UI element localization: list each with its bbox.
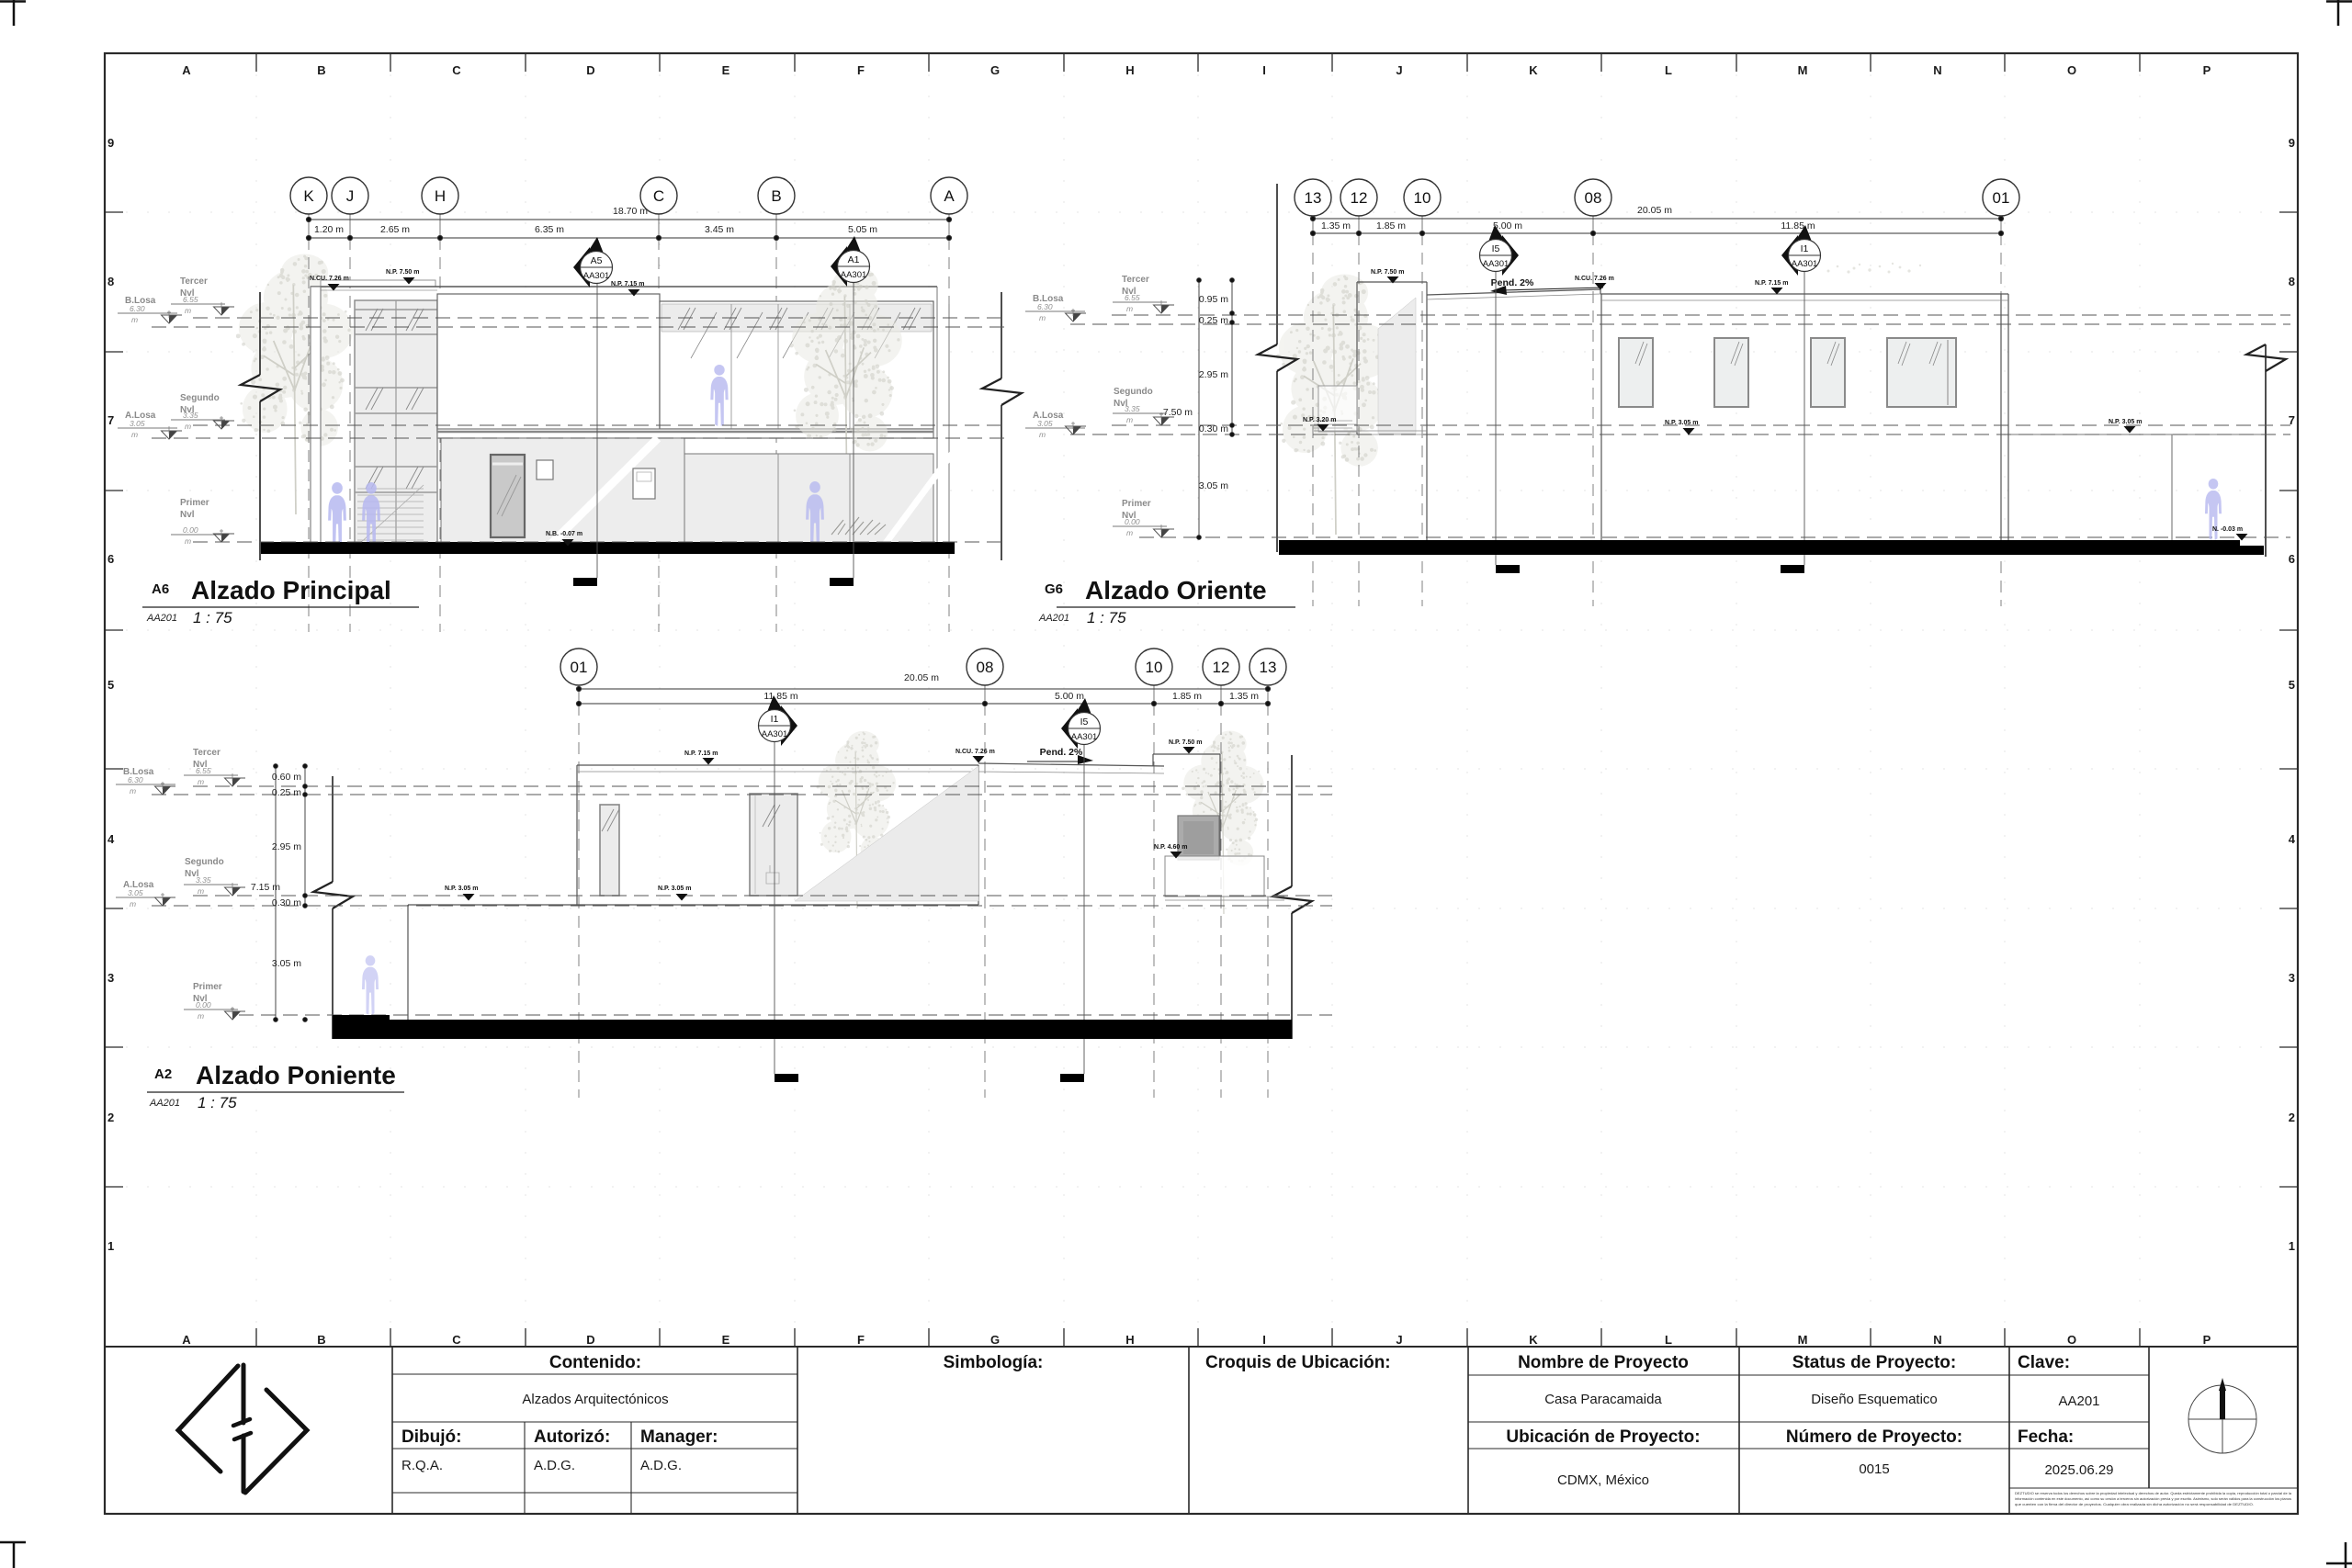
svg-text:N.B. -0.07 m: N.B. -0.07 m	[546, 531, 582, 537]
svg-text:A1: A1	[848, 254, 860, 265]
svg-text:8: 8	[107, 275, 114, 288]
svg-text:Simbología:: Simbología:	[944, 1353, 1044, 1372]
svg-text:Diseño Esquematico: Diseño Esquematico	[1811, 1392, 1938, 1407]
svg-text:N.CU. 7.26 m: N.CU. 7.26 m	[310, 276, 349, 282]
svg-text:Pend. 2%: Pend. 2%	[1491, 277, 1534, 288]
svg-text:N.P. 3.05 m: N.P. 3.05 m	[658, 886, 691, 892]
svg-text:11.85 m: 11.85 m	[763, 691, 797, 702]
svg-text:3: 3	[2289, 971, 2295, 985]
svg-text:N.CU. 7.26 m: N.CU. 7.26 m	[955, 749, 995, 755]
svg-text:A: A	[182, 63, 191, 77]
svg-text:5: 5	[107, 678, 114, 692]
svg-text:0015: 0015	[1859, 1461, 1889, 1477]
svg-text:5: 5	[2289, 678, 2295, 692]
svg-text:N.P. 7.50 m: N.P. 7.50 m	[1371, 269, 1404, 276]
svg-text:Status de Proyecto:: Status de Proyecto:	[1792, 1353, 1956, 1372]
svg-text:Primer: Primer	[1122, 499, 1151, 509]
svg-text:2.65 m: 2.65 m	[380, 224, 410, 235]
svg-text:Número de Proyecto:: Número de Proyecto:	[1786, 1427, 1962, 1447]
svg-text:Primer: Primer	[180, 498, 209, 508]
svg-text:AA201: AA201	[1038, 613, 1069, 624]
svg-text:m: m	[131, 315, 138, 324]
svg-text:1 : 75: 1 : 75	[198, 1094, 237, 1111]
svg-text:N.P. 7.50 m: N.P. 7.50 m	[386, 269, 419, 276]
svg-text:9: 9	[107, 136, 114, 150]
svg-text:6: 6	[107, 552, 114, 566]
svg-text:A2: A2	[154, 1066, 172, 1082]
svg-text:F: F	[857, 1333, 865, 1347]
svg-text:3.05: 3.05	[128, 888, 143, 897]
svg-text:3.35: 3.35	[183, 411, 198, 420]
svg-text:0.60 m: 0.60 m	[272, 772, 301, 783]
svg-text:Alzados Arquitectónicos: Alzados Arquitectónicos	[522, 1392, 668, 1407]
svg-text:D: D	[586, 63, 594, 77]
svg-text:E: E	[722, 63, 730, 77]
svg-text:m: m	[198, 777, 204, 786]
svg-text:I5: I5	[1492, 243, 1500, 254]
svg-text:K: K	[1529, 63, 1538, 77]
svg-text:G: G	[990, 63, 1000, 77]
svg-text:Alzado Poniente: Alzado Poniente	[196, 1061, 396, 1089]
svg-text:4: 4	[2289, 832, 2296, 846]
svg-text:3.05: 3.05	[1037, 419, 1053, 428]
svg-text:N: N	[1933, 1333, 1941, 1347]
svg-text:2025.06.29: 2025.06.29	[2044, 1462, 2113, 1478]
svg-text:2.95 m: 2.95 m	[1199, 369, 1228, 380]
svg-text:01: 01	[571, 659, 588, 676]
svg-text:1.20 m: 1.20 m	[314, 224, 344, 235]
svg-text:R.Q.A.: R.Q.A.	[401, 1458, 443, 1473]
svg-text:m: m	[1126, 415, 1133, 424]
svg-text:N.P. 3.05 m: N.P. 3.05 m	[1665, 420, 1698, 426]
svg-text:I5: I5	[1080, 716, 1089, 728]
svg-text:20.05 m: 20.05 m	[904, 672, 939, 683]
svg-text:A: A	[182, 1333, 191, 1347]
svg-text:A: A	[944, 187, 955, 205]
svg-text:Tercer: Tercer	[1122, 275, 1149, 285]
svg-text:A6: A6	[152, 581, 169, 597]
svg-text:Alzado Principal: Alzado Principal	[191, 576, 391, 604]
svg-text:3.45 m: 3.45 m	[705, 224, 734, 235]
svg-text:J: J	[1396, 1333, 1402, 1347]
svg-text:K: K	[1529, 1333, 1538, 1347]
svg-text:Tercer: Tercer	[193, 748, 220, 758]
svg-text:AA301: AA301	[583, 271, 610, 281]
svg-text:M: M	[1798, 63, 1808, 77]
svg-text:Fecha:: Fecha:	[2018, 1427, 2074, 1447]
svg-text:6.30: 6.30	[128, 775, 143, 784]
svg-text:m: m	[185, 306, 191, 315]
svg-text:AA301: AA301	[1483, 259, 1510, 269]
svg-text:6.30: 6.30	[130, 304, 145, 313]
svg-text:Clave:: Clave:	[2018, 1353, 2070, 1372]
svg-text:1 : 75: 1 : 75	[193, 609, 232, 626]
svg-text:18.70 m: 18.70 m	[613, 206, 648, 217]
svg-text:0.25 m: 0.25 m	[272, 787, 301, 798]
svg-text:m: m	[1039, 313, 1046, 322]
svg-text:G: G	[990, 1333, 1000, 1347]
svg-text:6.30: 6.30	[1037, 302, 1053, 311]
svg-text:20.05 m: 20.05 m	[1637, 205, 1672, 216]
svg-text:Tercer: Tercer	[180, 276, 208, 287]
svg-text:1.35 m: 1.35 m	[1229, 691, 1259, 702]
svg-text:G6: G6	[1045, 581, 1063, 597]
svg-text:2.95 m: 2.95 m	[272, 841, 301, 852]
svg-text:3.35: 3.35	[196, 875, 211, 885]
svg-text:B: B	[771, 187, 781, 205]
svg-text:K: K	[303, 187, 314, 205]
svg-text:AA201: AA201	[149, 1098, 180, 1109]
svg-text:08: 08	[1585, 189, 1602, 207]
svg-text:10: 10	[1146, 659, 1163, 676]
svg-text:CDMX, México: CDMX, México	[1557, 1472, 1649, 1488]
svg-text:6.55: 6.55	[183, 295, 198, 304]
svg-text:1: 1	[2289, 1239, 2295, 1253]
svg-text:6.35 m: 6.35 m	[535, 224, 564, 235]
svg-text:Nvl: Nvl	[180, 510, 195, 520]
svg-text:DEZTUDIO se reserva todos los: DEZTUDIO se reserva todos los derechos s…	[2015, 1492, 2292, 1495]
svg-text:0.00: 0.00	[1125, 517, 1140, 526]
svg-text:m: m	[130, 786, 136, 795]
svg-text:H: H	[1125, 1333, 1134, 1347]
svg-text:7: 7	[107, 413, 114, 427]
svg-text:N.P. 7.50 m: N.P. 7.50 m	[1169, 739, 1202, 746]
svg-text:AA301: AA301	[1792, 259, 1818, 269]
svg-text:m: m	[131, 430, 138, 439]
svg-text:9: 9	[2289, 136, 2295, 150]
svg-text:2: 2	[107, 1111, 114, 1124]
svg-text:0.30 m: 0.30 m	[272, 897, 301, 908]
svg-text:6.55: 6.55	[1125, 293, 1140, 302]
svg-text:11.85 m: 11.85 m	[1781, 220, 1815, 231]
svg-text:0.25 m: 0.25 m	[1199, 315, 1228, 326]
svg-text:m: m	[1126, 304, 1133, 313]
svg-text:J: J	[346, 187, 355, 205]
svg-text:M: M	[1798, 1333, 1808, 1347]
svg-text:Manager:: Manager:	[640, 1427, 718, 1447]
svg-text:m: m	[185, 536, 191, 546]
svg-text:0.30 m: 0.30 m	[1199, 423, 1228, 434]
svg-text:0.00: 0.00	[196, 1000, 211, 1010]
svg-text:Contenido:: Contenido:	[549, 1353, 641, 1372]
svg-text:N.P. 7.15 m: N.P. 7.15 m	[611, 281, 644, 288]
svg-text:N.P. 3.05 m: N.P. 3.05 m	[445, 886, 478, 892]
svg-text:m: m	[198, 1011, 204, 1021]
svg-text:Segundo: Segundo	[180, 393, 220, 403]
svg-text:A.D.G.: A.D.G.	[640, 1458, 682, 1473]
svg-text:3.05 m: 3.05 m	[1199, 480, 1228, 491]
svg-text:I: I	[1262, 1333, 1266, 1347]
svg-text:I: I	[1262, 63, 1266, 77]
svg-text:3: 3	[107, 971, 114, 985]
svg-text:N. -0.03 m: N. -0.03 m	[2212, 526, 2243, 533]
svg-text:N.P. 7.15 m: N.P. 7.15 m	[684, 750, 718, 757]
svg-text:Casa Paracamaida: Casa Paracamaida	[1544, 1392, 1662, 1407]
svg-text:1 : 75: 1 : 75	[1087, 609, 1126, 626]
svg-text:10: 10	[1414, 189, 1431, 207]
svg-text:13: 13	[1305, 189, 1322, 207]
svg-text:8: 8	[2289, 275, 2295, 288]
svg-text:Alzado Oriente: Alzado Oriente	[1085, 576, 1267, 604]
svg-text:1.85 m: 1.85 m	[1376, 220, 1406, 231]
svg-text:5.05 m: 5.05 m	[848, 224, 877, 235]
svg-text:AA301: AA301	[841, 270, 867, 280]
svg-text:AA201: AA201	[2058, 1393, 2099, 1409]
svg-text:Primer: Primer	[193, 982, 222, 992]
svg-text:C: C	[653, 187, 664, 205]
svg-text:2: 2	[2289, 1111, 2295, 1124]
svg-text:AA301: AA301	[762, 729, 788, 739]
svg-text:Segundo: Segundo	[185, 857, 224, 867]
svg-text:N: N	[1933, 63, 1941, 77]
svg-text:AA301: AA301	[1071, 732, 1098, 742]
svg-text:Autorizó:: Autorizó:	[534, 1427, 610, 1447]
svg-text:A5: A5	[591, 255, 603, 266]
svg-text:N.P. 3.05 m: N.P. 3.05 m	[2109, 419, 2142, 425]
svg-text:Croquis de Ubicación:: Croquis de Ubicación:	[1205, 1353, 1391, 1372]
svg-text:O: O	[2067, 1333, 2076, 1347]
svg-text:12: 12	[1213, 659, 1230, 676]
svg-text:C: C	[452, 1333, 461, 1347]
svg-text:0.95 m: 0.95 m	[1199, 294, 1228, 305]
svg-text:m: m	[130, 899, 136, 908]
svg-text:D: D	[586, 1333, 594, 1347]
svg-text:m: m	[185, 422, 191, 431]
svg-text:que cuenten con la firma del d: que cuenten con la firma del director de…	[2015, 1503, 2254, 1506]
svg-text:0.00: 0.00	[183, 525, 198, 535]
svg-text:Pend. 2%: Pend. 2%	[1040, 747, 1083, 758]
svg-text:Segundo: Segundo	[1114, 387, 1153, 397]
svg-text:m: m	[1039, 430, 1046, 439]
svg-text:m: m	[198, 886, 204, 896]
svg-text:Nombre de Proyecto: Nombre de Proyecto	[1518, 1353, 1689, 1372]
svg-text:Ubicación de Proyecto:: Ubicación de Proyecto:	[1506, 1427, 1700, 1447]
svg-text:A.D.G.: A.D.G.	[534, 1458, 575, 1473]
svg-text:B: B	[317, 63, 325, 77]
svg-text:AA201: AA201	[146, 613, 177, 624]
svg-text:H: H	[435, 187, 446, 205]
svg-text:O: O	[2067, 63, 2076, 77]
svg-text:E: E	[722, 1333, 730, 1347]
svg-text:N.P. 4.60 m: N.P. 4.60 m	[1154, 844, 1187, 851]
svg-text:08: 08	[977, 659, 994, 676]
svg-text:H: H	[1125, 63, 1134, 77]
svg-text:3.35: 3.35	[1125, 404, 1140, 413]
svg-text:5.00 m: 5.00 m	[1055, 691, 1084, 702]
svg-text:P: P	[2203, 63, 2211, 77]
svg-text:I1: I1	[1801, 243, 1809, 254]
svg-text:4: 4	[107, 832, 115, 846]
svg-text:1.35 m: 1.35 m	[1321, 220, 1351, 231]
svg-text:m: m	[1126, 528, 1133, 537]
svg-text:F: F	[857, 63, 865, 77]
svg-text:J: J	[1396, 63, 1402, 77]
svg-text:N.CU. 7.26 m: N.CU. 7.26 m	[1575, 276, 1614, 282]
svg-text:Dibujó:: Dibujó:	[401, 1427, 461, 1447]
svg-text:6: 6	[2289, 552, 2295, 566]
svg-text:3.05 m: 3.05 m	[272, 958, 301, 969]
svg-text:B: B	[317, 1333, 325, 1347]
svg-text:1: 1	[107, 1239, 114, 1253]
svg-text:I1: I1	[771, 714, 779, 725]
svg-text:N.P. 7.15 m: N.P. 7.15 m	[1755, 280, 1788, 287]
svg-text:7.15 m: 7.15 m	[251, 882, 280, 893]
svg-text:13: 13	[1260, 659, 1277, 676]
svg-text:información contenida en este: información contenida en este documento,…	[2015, 1497, 2291, 1501]
svg-text:01: 01	[1993, 189, 2010, 207]
svg-text:L: L	[1665, 63, 1672, 77]
svg-text:C: C	[452, 63, 461, 77]
svg-text:6.55: 6.55	[196, 766, 211, 775]
svg-text:12: 12	[1351, 189, 1368, 207]
svg-text:3.05: 3.05	[130, 419, 145, 428]
svg-text:P: P	[2203, 1333, 2211, 1347]
svg-text:L: L	[1665, 1333, 1672, 1347]
svg-text:N.P. 3.20 m: N.P. 3.20 m	[1303, 417, 1336, 423]
svg-text:1.85 m: 1.85 m	[1172, 691, 1202, 702]
svg-text:7.50 m: 7.50 m	[1163, 407, 1193, 418]
